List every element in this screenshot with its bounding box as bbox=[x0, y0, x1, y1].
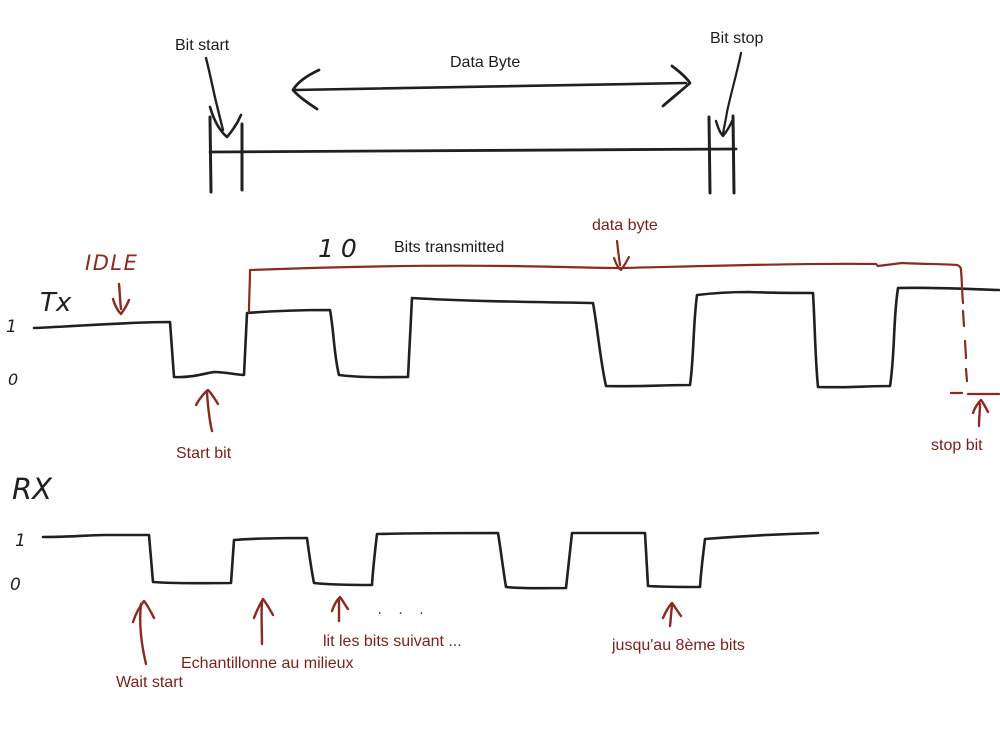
stop-bit-dashed-vertical bbox=[963, 311, 967, 381]
bit-start-arrowhead-icon bbox=[210, 107, 241, 137]
whiteboard-canvas: Bit start Data Byte Bit stop IDLE Tx 1 bbox=[0, 0, 1000, 750]
data-byte-arrow bbox=[617, 241, 620, 265]
rx-level-high-label: 1 bbox=[15, 531, 26, 551]
sample-middle-label: Echantillonne au milieux bbox=[181, 655, 354, 672]
frame-tick-right-inner bbox=[709, 117, 710, 193]
until-8th-bit-arrow bbox=[670, 606, 672, 626]
wait-start-label: Wait start bbox=[116, 674, 184, 691]
uart-timing-diagram: Bit start Data Byte Bit stop IDLE Tx 1 bbox=[0, 0, 1000, 750]
stop-bit-arrow bbox=[979, 404, 980, 426]
rx-waveform-trace bbox=[43, 533, 818, 588]
rx-signal-label: RX bbox=[12, 472, 53, 506]
ellipsis-dots: . . . bbox=[378, 602, 430, 618]
start-bit-label: Start bit bbox=[176, 445, 232, 462]
tx-waveform-section: IDLE Tx 1 0 10 Bits transmitted data byt… bbox=[6, 217, 999, 462]
bits-transmitted-label: Bits transmitted bbox=[394, 239, 504, 256]
sample-middle-arrowhead-icon bbox=[254, 599, 273, 618]
tx-signal-label: Tx bbox=[40, 288, 72, 318]
wait-start-arrowhead-icon bbox=[133, 601, 154, 622]
data-byte-annotation-label: data byte bbox=[592, 217, 658, 234]
bits-count-handwritten: 10 bbox=[318, 234, 364, 263]
until-8th-bit-label: jusqu'au 8ème bits bbox=[611, 637, 745, 654]
tx-waveform-trace bbox=[34, 288, 999, 388]
byte-frame-diagram: Bit start Data Byte Bit stop bbox=[175, 30, 763, 193]
idle-label: IDLE bbox=[85, 251, 138, 275]
byte-frame-line bbox=[210, 149, 736, 152]
data-byte-overline bbox=[249, 263, 963, 312]
stop-bit-label: stop bit bbox=[931, 437, 983, 454]
bit-start-label: Bit start bbox=[175, 37, 230, 54]
bit-stop-label: Bit stop bbox=[710, 30, 763, 47]
data-byte-span-arrow-shaft bbox=[294, 83, 686, 90]
frame-tick-right-outer bbox=[733, 116, 734, 193]
stop-bit-dashed-baseline bbox=[951, 393, 999, 394]
rx-waveform-section: RX 1 0 Wait start Echantillonne au milie… bbox=[10, 472, 818, 691]
wait-start-arrow bbox=[140, 604, 146, 664]
data-byte-span-label: Data Byte bbox=[450, 54, 520, 71]
data-byte-span-arrowhead-right-icon bbox=[663, 66, 690, 106]
tx-level-high-label: 1 bbox=[6, 317, 17, 337]
read-next-bits-label: lit les bits suivant ... bbox=[323, 633, 462, 650]
start-bit-arrow bbox=[207, 393, 212, 431]
rx-level-low-label: 0 bbox=[10, 575, 21, 595]
idle-arrow bbox=[119, 284, 121, 309]
tx-level-low-label: 0 bbox=[8, 370, 18, 389]
frame-tick-left-outer bbox=[210, 117, 211, 192]
